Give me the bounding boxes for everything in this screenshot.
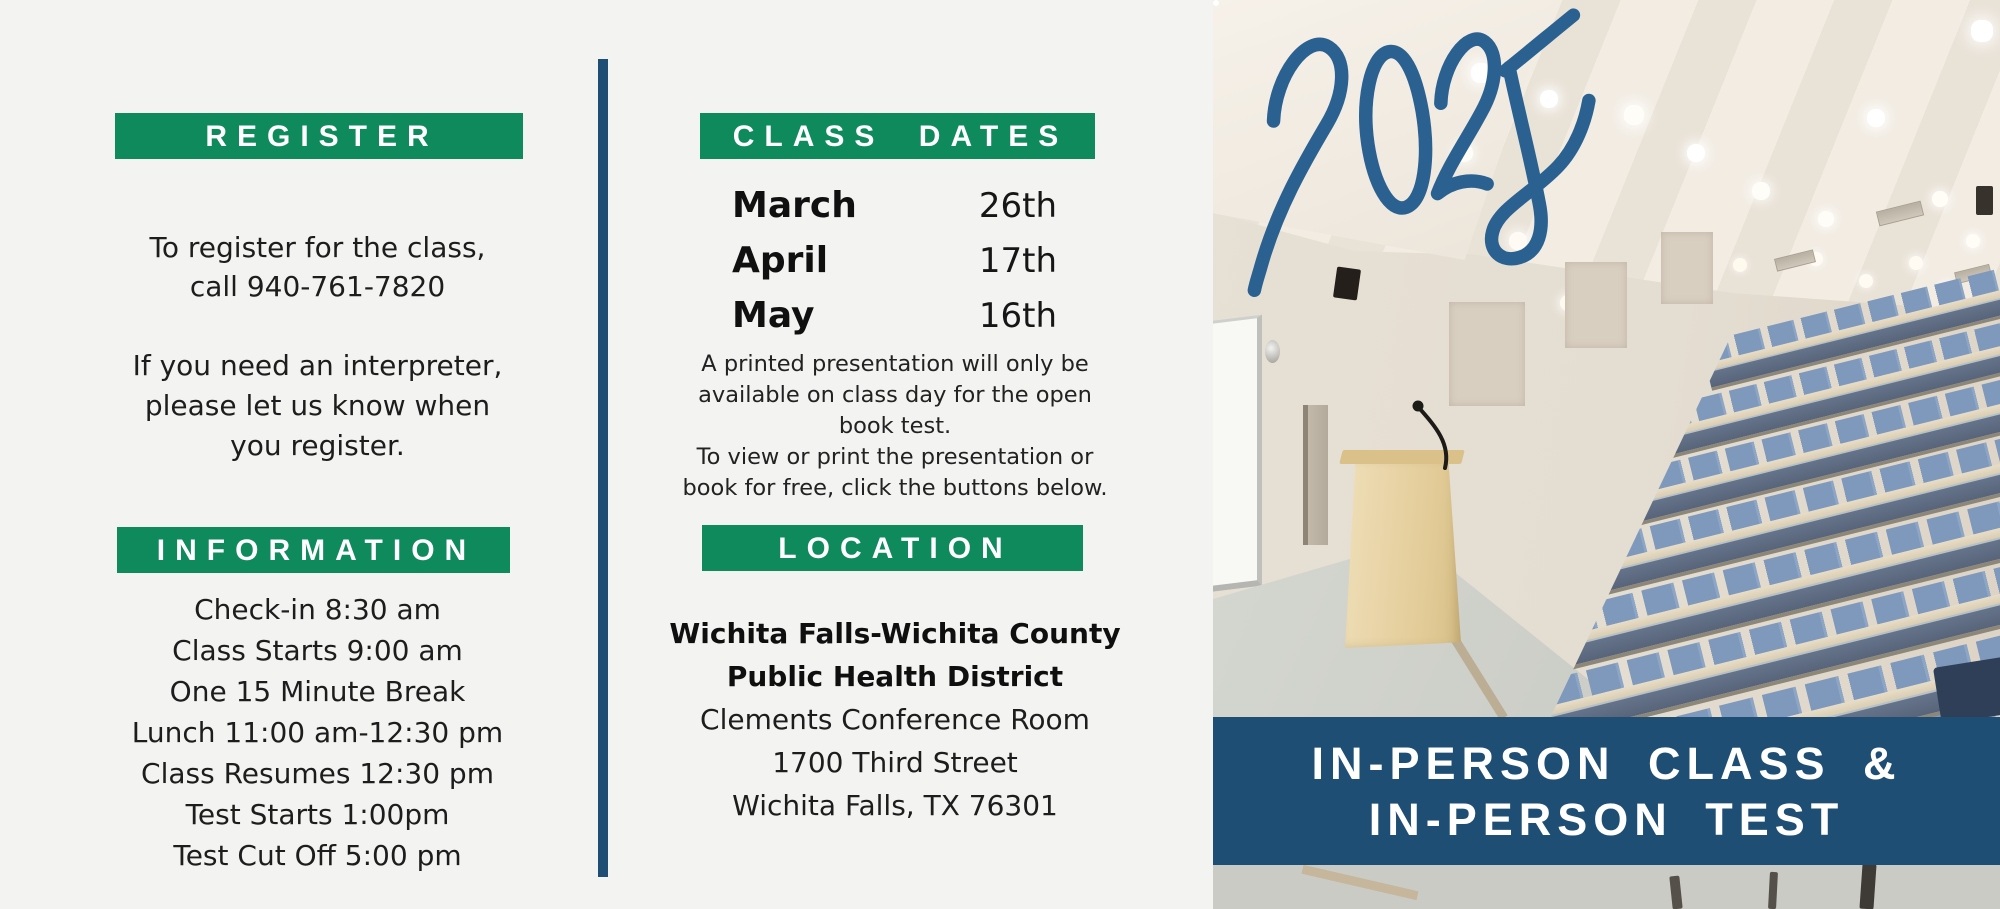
tiered-seating [1483,248,2000,718]
information-item: Test Starts 1:00pm [95,794,540,835]
acoustic-panel [1449,302,1525,406]
banner-line: IN-PERSON TEST [1213,792,2000,848]
note-line: book for free, click the buttons below. [660,473,1130,504]
wall-lamp [1265,340,1280,363]
class-date-day: 26th [979,186,1057,226]
information-item: Lunch 11:00 am-12:30 pm [95,712,540,753]
information-item: Class Resumes 12:30 pm [95,753,540,794]
location-line: Wichita Falls, TX 76301 [660,784,1130,827]
location-address: Wichita Falls-Wichita County Public Heal… [660,612,1130,827]
interpreter-line: please let us know when [95,386,540,426]
presentation-note: A printed presentation will only be avai… [660,349,1130,504]
class-date-month: May [732,295,814,336]
register-line: To register for the class, [95,228,540,267]
class-date-day: 16th [979,296,1057,336]
doorway-alcove [1303,405,1328,545]
class-date-row: May 16th [732,288,1057,343]
year-2025-script [1248,14,1608,314]
note-line: book test. [660,411,1130,442]
whiteboard [1213,315,1262,593]
class-date-row: March 26th [732,178,1057,233]
note-line: To view or print the presentation or [660,442,1130,473]
floor [1213,858,2000,909]
wall-speaker-icon [1976,186,1993,215]
register-phone-text: To register for the class, call 940-761-… [95,228,540,306]
note-line: A printed presentation will only be [660,349,1130,380]
information-list: Check-in 8:30 am Class Starts 9:00 am On… [95,589,540,876]
location-name-line: Public Health District [660,655,1130,698]
register-header: REGISTER [115,113,523,159]
flyer: REGISTER To register for the class, call… [0,0,2000,909]
class-dates-header: CLASS DATES [700,113,1095,159]
in-person-banner: IN-PERSON CLASS & IN-PERSON TEST [1213,717,2000,865]
register-phone-number: call 940-761-7820 [95,267,540,306]
location-header: LOCATION [702,525,1083,571]
information-item: Check-in 8:30 am [95,589,540,630]
class-date-month: April [732,240,828,281]
interpreter-note: If you need an interpreter, please let u… [95,346,540,466]
note-line: available on class day for the open [660,380,1130,411]
interpreter-line: you register. [95,426,540,466]
shadowed-desk [1933,657,2000,725]
class-date-day: 17th [979,241,1057,281]
banner-line: IN-PERSON CLASS & [1213,736,2000,792]
class-dates-table: March 26th April 17th May 16th [732,178,1057,343]
class-date-month: March [732,185,857,226]
acoustic-panel [1661,232,1713,304]
vertical-divider [598,59,608,877]
microphone-icon [1393,396,1463,471]
location-line: Clements Conference Room [660,698,1130,741]
information-item: One 15 Minute Break [95,671,540,712]
information-header: INFORMATION [117,527,510,573]
location-line: 1700 Third Street [660,741,1130,784]
information-item: Class Starts 9:00 am [95,630,540,671]
class-date-row: April 17th [732,233,1057,288]
location-name-line: Wichita Falls-Wichita County [660,612,1130,655]
podium [1345,458,1461,648]
interpreter-line: If you need an interpreter, [95,346,540,386]
lecture-hall-photo: 2025 IN-PERSON CLASS & IN-PERSON TEST [1213,0,2000,909]
information-item: Test Cut Off 5:00 pm [95,835,540,876]
ceiling-lights [1213,0,1219,6]
